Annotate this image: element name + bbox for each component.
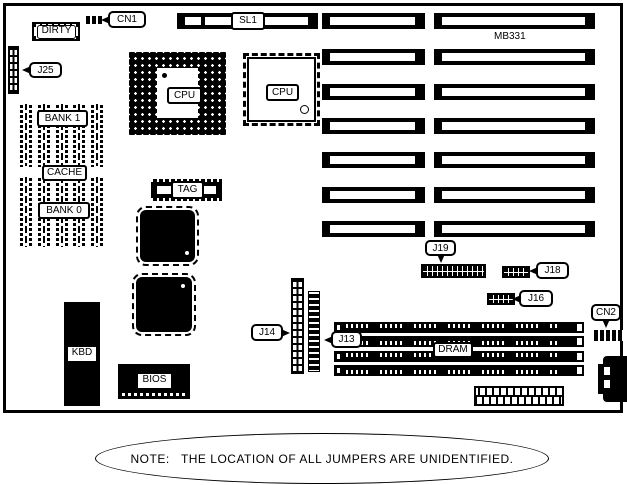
simm-slot: [334, 365, 575, 376]
isa-slot-mid: [322, 84, 425, 100]
j14-callout: J14: [251, 324, 283, 341]
power-connector: [474, 386, 564, 406]
dip-socket: [20, 176, 32, 248]
motherboard-diagram: CN1 DIRTY J25 CPU CPU SL1 MB331: [0, 0, 627, 485]
dram-label: DRAM: [433, 342, 473, 358]
j19-label: J19: [432, 243, 448, 254]
j19-callout: J19: [425, 240, 456, 256]
cn2-connector: [594, 330, 623, 341]
kbd-controller-chip: KBD: [64, 302, 100, 406]
j18-header: [502, 266, 530, 278]
dirty-chip-label: DIRTY: [37, 25, 76, 39]
cache-label: CACHE: [42, 165, 87, 181]
isa-slot-mid: [322, 118, 425, 134]
qfp-pin1-circle: [300, 105, 309, 114]
isa-slot-mid: [322, 187, 425, 203]
din-body: [603, 356, 627, 402]
asic-chip: [136, 277, 192, 332]
power-connector-teeth: [476, 397, 562, 404]
dip-socket: [91, 176, 103, 248]
asic-chip: [140, 210, 195, 262]
dip-socket: [91, 103, 103, 167]
bios-pin-row: [122, 393, 186, 396]
j25-label: J25: [37, 65, 53, 76]
bank1-label: BANK 1: [37, 110, 88, 127]
simm-slot: [334, 322, 575, 333]
note-text: NOTE: THE LOCATION OF ALL JUMPERS ARE UN…: [130, 452, 513, 466]
j25-header: [8, 46, 19, 94]
j14-header: [291, 278, 304, 374]
j25-callout: J25: [29, 62, 62, 78]
kbd-label: KBD: [68, 347, 96, 361]
sl1-label: SL1: [231, 12, 265, 30]
isa-slot-long: [434, 221, 595, 237]
j18-callout: J18: [536, 262, 569, 279]
isa-slot-long: [434, 84, 595, 100]
pin1-dot: [162, 73, 167, 78]
cn1-callout: CN1: [108, 11, 146, 28]
bank0-label: BANK 0: [38, 202, 90, 219]
isa-slot-mid: [322, 49, 425, 65]
keyboard-din-connector: [598, 356, 627, 402]
isa-slot-long: [434, 49, 595, 65]
sl1-slot-divider: [201, 16, 205, 26]
cn1-label: CN1: [117, 14, 137, 25]
cn2-label: CN2: [596, 307, 616, 318]
cn2-callout: CN2: [591, 304, 621, 321]
j13-callout: J13: [331, 331, 362, 348]
j14-label: J14: [259, 327, 275, 338]
j19-header: [421, 264, 486, 278]
isa-slot-mid: [322, 221, 425, 237]
cpu-qfp-label: CPU: [266, 84, 299, 101]
isa-slot-long: [434, 152, 595, 168]
bios-chip: BIOS: [118, 364, 190, 399]
tag-label: TAG: [171, 181, 204, 199]
j13-label: J13: [338, 334, 354, 345]
j18-label: J18: [544, 265, 560, 276]
j16-header: [487, 293, 515, 305]
j13-header: [308, 291, 320, 372]
isa-slot-mid: [322, 13, 425, 29]
cpu-socket-label: CPU: [167, 87, 202, 104]
dip-socket: [20, 103, 32, 167]
board-model-text: MB331: [494, 31, 526, 42]
asic-pin1-dot: [181, 284, 185, 288]
isa-slot-long: [434, 13, 595, 29]
din-hole: [604, 367, 610, 375]
power-connector-pins: [476, 388, 562, 397]
bios-label: BIOS: [138, 374, 171, 388]
din-hole: [604, 380, 610, 388]
isa-slot-long: [434, 187, 595, 203]
j16-callout: J16: [519, 290, 553, 307]
isa-slot-long: [434, 118, 595, 134]
isa-slot-mid: [322, 152, 425, 168]
asic-pin1-dot: [185, 251, 189, 255]
note-ellipse: NOTE: THE LOCATION OF ALL JUMPERS ARE UN…: [95, 433, 549, 484]
j16-label: J16: [528, 293, 544, 304]
